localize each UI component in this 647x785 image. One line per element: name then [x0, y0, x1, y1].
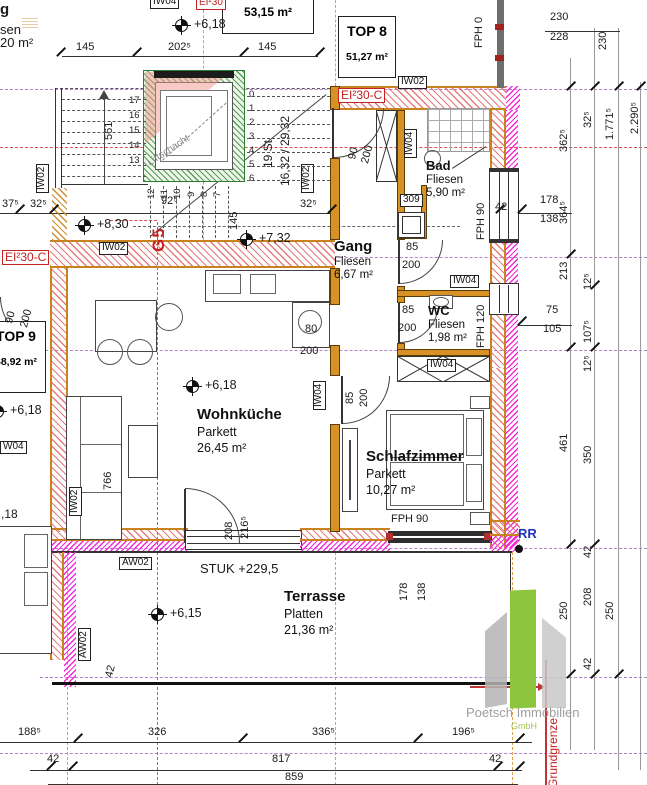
label-178: 178: [399, 583, 411, 601]
kitchen-sink: [213, 274, 241, 294]
partition: [330, 345, 340, 376]
label-75: 75: [546, 305, 558, 317]
window-frame-line: [499, 285, 500, 313]
label-364: 364⁵: [559, 201, 571, 224]
label-10: 10: [173, 188, 183, 199]
room-label-bad: Bad Fliesen 5,90 m²: [426, 158, 465, 199]
top9-pillow: [24, 572, 48, 606]
wall-east: [490, 110, 506, 170]
label-16: 16: [129, 111, 140, 121]
room-area: 21,36 m²: [284, 623, 345, 637]
label-32: 32⁵: [583, 111, 595, 128]
dim-line: [570, 58, 571, 750]
room-finish: Fliesen: [428, 319, 467, 331]
shower-grid: [427, 108, 490, 152]
level-mark-icon: [175, 19, 188, 32]
floor-plan-canvas: Poetsch Immobilien GmbH TOP 8 51,27 m² 5…: [0, 0, 647, 785]
label-37: 37⁵: [2, 199, 19, 211]
terrace-west-wall: [50, 552, 64, 660]
label-85: 85: [345, 392, 357, 404]
label-5: 5: [249, 160, 254, 170]
label-2: 2: [249, 118, 254, 128]
wall-north-insulation: [506, 86, 520, 110]
wall-stair-south: [50, 240, 335, 268]
room-label-wc: WC Fliesen 1,98 m²: [428, 303, 467, 344]
stair-tread: [247, 180, 330, 181]
room-name: WC: [428, 303, 467, 318]
label-15: 15: [129, 126, 140, 136]
label-6: 6: [249, 174, 254, 184]
label-42: 42: [489, 754, 501, 766]
window-frame-line: [508, 172, 509, 239]
label-138: 138: [417, 583, 429, 601]
window-frame-line: [508, 285, 509, 313]
label-g5: G5: [150, 227, 168, 252]
room-finish: Fliesen: [334, 256, 373, 268]
stair-tread: [62, 154, 146, 155]
logo-company: Poetsch Immobilien: [466, 706, 579, 720]
label-fph0: FPH 0: [474, 17, 486, 48]
label-766: 766: [103, 472, 115, 490]
room-area: 1,98 m²: [428, 332, 467, 344]
label-230: 230: [598, 32, 610, 50]
label-1: 1: [249, 104, 254, 114]
label-iw02: IW02: [69, 487, 82, 516]
label-42: 42: [47, 754, 59, 766]
stair-tread: [189, 186, 190, 238]
label-32: 32⁵: [30, 199, 47, 211]
door-leaf: [184, 489, 186, 543]
window-marker: [386, 533, 393, 540]
nightstand: [470, 512, 490, 525]
dim-line: [0, 742, 532, 743]
label-iw04: IW04: [313, 381, 326, 410]
label-85: 85: [402, 305, 414, 317]
wall-corner-se: [490, 520, 520, 536]
label-208: 208: [583, 588, 595, 606]
room-label-terrasse: Terrasse Platten 21,36 m²: [284, 588, 345, 637]
stair-tread: [202, 186, 203, 238]
stair-tread: [247, 110, 330, 111]
label-fph120: FPH 120: [476, 305, 488, 348]
coffee-table: [128, 425, 158, 478]
room-area: 6,67 m²: [334, 269, 373, 281]
wall-east-insulation: [506, 110, 518, 170]
stair-tread: [228, 186, 229, 238]
stair-tread: [62, 176, 146, 177]
label-250: 250: [605, 602, 617, 620]
label-461: 461: [559, 434, 571, 452]
label-18: ,18: [1, 508, 18, 521]
dim-line: [640, 82, 641, 770]
room-name: Terrasse: [284, 588, 345, 605]
wall-south-edge: [50, 551, 512, 553]
level-mark-text: +8,30: [97, 218, 129, 231]
room-finish: Fliesen: [426, 174, 465, 186]
label-aw02: AW02: [78, 628, 91, 661]
label-20m: 20 m²: [0, 36, 33, 50]
room-finish: Parkett: [366, 467, 464, 481]
label-105: 105: [543, 324, 561, 336]
level-mark-icon: [186, 380, 199, 393]
label-iw04: IW04: [404, 129, 417, 158]
level-mark-text: +7,32: [259, 232, 291, 245]
dim-line: [30, 770, 522, 771]
label-iw02: IW02: [36, 164, 49, 193]
label-fph90: FPH 90: [476, 203, 488, 240]
stair-tread: [176, 186, 177, 238]
partition: [397, 349, 490, 356]
level-mark-text: +6,18: [194, 18, 226, 31]
nightstand: [470, 396, 490, 409]
door-leaf: [341, 376, 343, 424]
label-250: 250: [559, 602, 571, 620]
stair-tread: [247, 152, 330, 153]
stair-tread: [215, 186, 216, 238]
top9-name: TOP 9: [0, 328, 45, 344]
label-200: 200: [359, 389, 371, 407]
level-mark-text: +6,15: [170, 607, 202, 620]
level-mark-icon: [78, 219, 91, 232]
label-ei30: EI²30: [196, 0, 226, 10]
stair-wall: [61, 88, 62, 188]
label-grundgrenze: Grundgrenze: [547, 718, 560, 785]
label-12: 12: [147, 188, 157, 199]
logo-shape-gray-right: [542, 610, 566, 708]
label-ei30c: EI²30-C: [2, 250, 49, 265]
label-2290: 2.290⁵: [630, 102, 642, 134]
label-336: 336⁵: [312, 727, 335, 739]
label-12: 12⁵: [583, 355, 595, 372]
parapet-fixing: [495, 24, 504, 30]
label-iw04: IW04: [450, 275, 479, 288]
label-561: 561: [104, 122, 116, 140]
label-19st: 19 St: [262, 140, 275, 168]
room-name: Bad: [426, 158, 465, 173]
pillow: [466, 464, 482, 502]
level-mark-text: +6,18: [205, 379, 237, 392]
sofa-back: [80, 397, 81, 539]
stair-tread: [62, 132, 146, 133]
stair-tread: [150, 186, 151, 238]
top9-box: TOP 9 68,92 m²: [0, 321, 46, 393]
top9-pillow: [24, 534, 48, 568]
level-mark-icon: [0, 405, 4, 418]
room-area: 5,90 m²: [426, 187, 465, 199]
label-188: 188⁵: [18, 727, 41, 739]
label-12: 12⁵: [583, 273, 595, 290]
label-42: 42: [583, 546, 595, 558]
label-17: 17: [129, 96, 140, 106]
label-w04: W04: [0, 441, 27, 454]
label-4: 4: [249, 146, 254, 156]
room-label-gang: Gang Fliesen 6,67 m²: [334, 238, 373, 281]
terrace-south-edge: [52, 682, 514, 685]
stair-tread: [62, 110, 146, 111]
top9-area: 68,92 m²: [0, 356, 45, 368]
stair-tread: [247, 96, 330, 97]
room-label-wohnkueche: Wohnküche Parkett 26,45 m²: [197, 406, 282, 455]
chair: [155, 303, 183, 331]
label-iw02: IW02: [301, 164, 314, 193]
label-213: 213: [559, 262, 571, 280]
label-1771: 1.771⁵: [605, 108, 617, 140]
level-mark-icon: [151, 608, 164, 621]
room-finish: Parkett: [197, 425, 282, 439]
wall-east-insulation: [506, 315, 518, 368]
room-name: Schlafzimmer: [366, 448, 464, 465]
sofa-cushion: [81, 492, 121, 493]
room-area: 10,27 m²: [366, 483, 464, 497]
parapet: [497, 0, 504, 88]
label-200: 200: [300, 346, 318, 358]
window-east-2: [489, 283, 519, 315]
stair-tread: [163, 186, 164, 238]
label-859: 859: [285, 772, 303, 784]
door-leaf: [332, 108, 334, 158]
label-326: 326: [148, 727, 166, 739]
level-mark-text: +6,18: [10, 404, 42, 417]
bedroom-window-line: [391, 536, 489, 538]
label-196: 196⁵: [452, 727, 475, 739]
stair-tread: [247, 138, 330, 139]
top8-box: TOP 8 51,27 m²: [338, 16, 396, 78]
label-200: 200: [360, 144, 376, 165]
dim-line: [618, 28, 619, 770]
label-817: 817: [272, 754, 290, 766]
stamp: [22, 18, 38, 28]
wall-east: [490, 243, 506, 283]
top8-area: 51,27 m²: [339, 51, 395, 63]
label-362: 362⁵: [559, 129, 571, 152]
sofa-cushion: [81, 444, 121, 445]
label-80: 80: [305, 324, 317, 336]
dim-tick: [315, 47, 325, 57]
logo-legal: GmbH: [511, 722, 537, 731]
label-138: 138: [540, 214, 558, 226]
dim-line: [62, 56, 318, 57]
label-0: 0: [249, 90, 254, 100]
label-309: 309: [400, 194, 423, 207]
label-145: 145: [258, 42, 276, 54]
label-107: 107⁵: [583, 320, 595, 343]
pillow: [466, 418, 482, 456]
label-85: 85: [406, 242, 418, 254]
wall-east: [490, 315, 506, 368]
stair-wall: [55, 88, 56, 188]
label-230: 230: [550, 12, 568, 24]
room-name: Gang: [334, 238, 373, 255]
label-208: 208: [224, 522, 236, 540]
label-3: 3: [249, 132, 254, 142]
stair-tread: [247, 124, 330, 125]
room-area: 26,45 m²: [197, 441, 282, 455]
sofa: [66, 396, 122, 540]
label-145: 145: [76, 42, 94, 54]
adjacent-area-box: 53,15 m²: [222, 0, 314, 34]
label-16322932: 16,32 / 29,32: [279, 116, 292, 186]
chair: [97, 339, 123, 365]
rr-symbol: [515, 545, 523, 553]
label-rr: RR: [518, 527, 537, 541]
terrace-west-insulation: [64, 552, 76, 687]
label-42: 42: [583, 658, 595, 670]
label-216: 216⁵: [240, 516, 252, 539]
room-label-schlafzimmer: Schlafzimmer Parkett 10,27 m²: [366, 448, 464, 497]
shelf-line: [349, 440, 351, 500]
dim-line: [594, 28, 595, 750]
label-aw02: AW02: [119, 557, 152, 570]
door-leaf: [398, 240, 400, 284]
top8-name: TOP 8: [339, 23, 395, 39]
stair-tread: [62, 99, 146, 100]
section-line-red: [0, 147, 647, 148]
parapet-fixing: [495, 55, 504, 61]
stair-walkline-arrow: [99, 90, 109, 99]
level-mark-icon: [240, 233, 253, 246]
stair-wall-hatch: [52, 188, 67, 240]
label-11: 11: [160, 189, 170, 199]
wall-east-insulation: [506, 243, 518, 283]
partition: [330, 424, 340, 532]
label-200: 200: [398, 323, 416, 335]
wall-south: [300, 528, 390, 541]
chair: [127, 339, 153, 365]
axis-line: [0, 89, 647, 90]
label-145: 145: [229, 212, 241, 230]
stair-tread: [62, 121, 146, 122]
terrace-door-line: [187, 543, 300, 544]
label-178: 178: [540, 195, 558, 207]
room-finish: Platten: [284, 607, 345, 621]
label-iw04: IW04: [427, 359, 456, 372]
lift-door: [154, 71, 234, 78]
adjacent-area: 53,15 m²: [223, 5, 313, 19]
stair-tread: [62, 165, 146, 166]
label-228: 228: [550, 32, 568, 44]
stair-tread: [247, 166, 330, 167]
label-iw04: IW04: [150, 0, 179, 9]
label-350: 350: [583, 446, 595, 464]
stair-tread: [62, 143, 146, 144]
label-fph90: FPH 90: [391, 514, 428, 526]
kitchen-hob: [250, 274, 276, 294]
window-cap: [489, 168, 519, 172]
label-32: 32⁵: [300, 199, 317, 211]
grid-axis: [335, 0, 336, 86]
logo-shape-gray-left: [485, 612, 507, 708]
room-name: Wohnküche: [197, 406, 282, 423]
label-stuk2295: STUK +229,5: [200, 562, 278, 576]
label-200: 200: [402, 260, 420, 272]
label-g: g: [0, 2, 9, 18]
label-iw02: IW02: [398, 76, 427, 89]
label-202: 202⁵: [168, 42, 191, 54]
partition: [330, 158, 340, 240]
grid-axis: [335, 552, 336, 785]
stair-landing-edge: [62, 184, 148, 185]
label-42: 42: [495, 202, 507, 214]
label-iw02: IW02: [99, 242, 128, 255]
logo-shape-green: [510, 590, 536, 709]
label-ei30c: EI²30-C: [338, 88, 385, 103]
window-niche-inner: [402, 216, 421, 234]
